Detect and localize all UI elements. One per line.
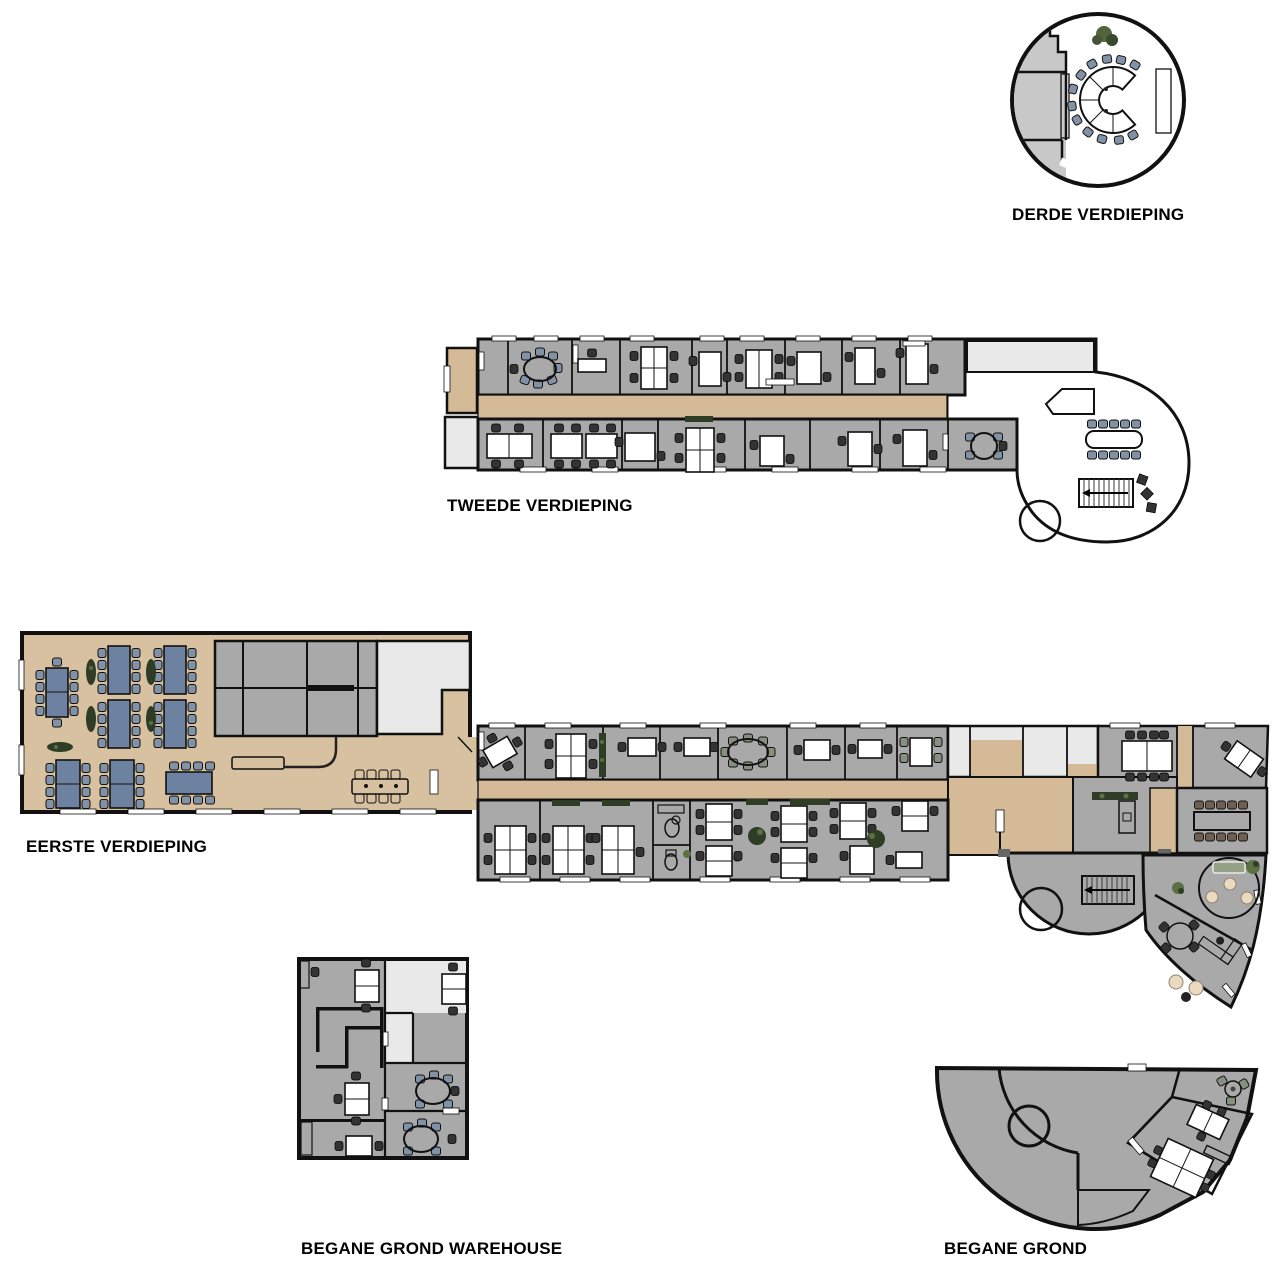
- floor-label-eerste-verdieping: EERSTE VERDIEPING: [26, 837, 207, 857]
- derde-door-panel-right: [1156, 69, 1171, 133]
- floor-label-begane-grond: BEGANE GROND: [944, 1239, 1087, 1259]
- floorplan-begane-grond: [937, 1064, 1256, 1229]
- lounge-wedge: [1143, 855, 1266, 1007]
- plant: [1092, 26, 1118, 46]
- floorplan-warehouse: [299, 959, 467, 1158]
- dark-stair-wedge: [1046, 389, 1094, 414]
- floorplan-sheet: DERDE VERDIEPING TWEEDE VERDIEPING EERST…: [0, 0, 1288, 1278]
- meeting-room-wood-table: [1177, 788, 1267, 853]
- horseshoe-conference-table: [1067, 54, 1141, 144]
- begane-outline: [937, 1068, 1256, 1229]
- floorplan-drawing: [0, 0, 1288, 1278]
- floor-label-tweede-verdieping: TWEEDE VERDIEPING: [447, 496, 633, 516]
- floorplan-derde-verdieping: [1006, 12, 1184, 188]
- floorplan-eerste-verdieping: [19, 633, 1272, 1007]
- tweede-corridor: [478, 395, 947, 419]
- eerste-corridor: [478, 780, 948, 800]
- tweede-storage-area: [967, 341, 1094, 372]
- stairs: [1079, 479, 1133, 507]
- eerste-lobby: [948, 777, 1073, 855]
- tweede-entry: [447, 348, 477, 413]
- floor-label-derde-verdieping: DERDE VERDIEPING: [1012, 205, 1184, 225]
- lounge-meeting-table: [1086, 420, 1142, 459]
- floor-label-begane-grond-warehouse: BEGANE GROND WAREHOUSE: [301, 1239, 562, 1259]
